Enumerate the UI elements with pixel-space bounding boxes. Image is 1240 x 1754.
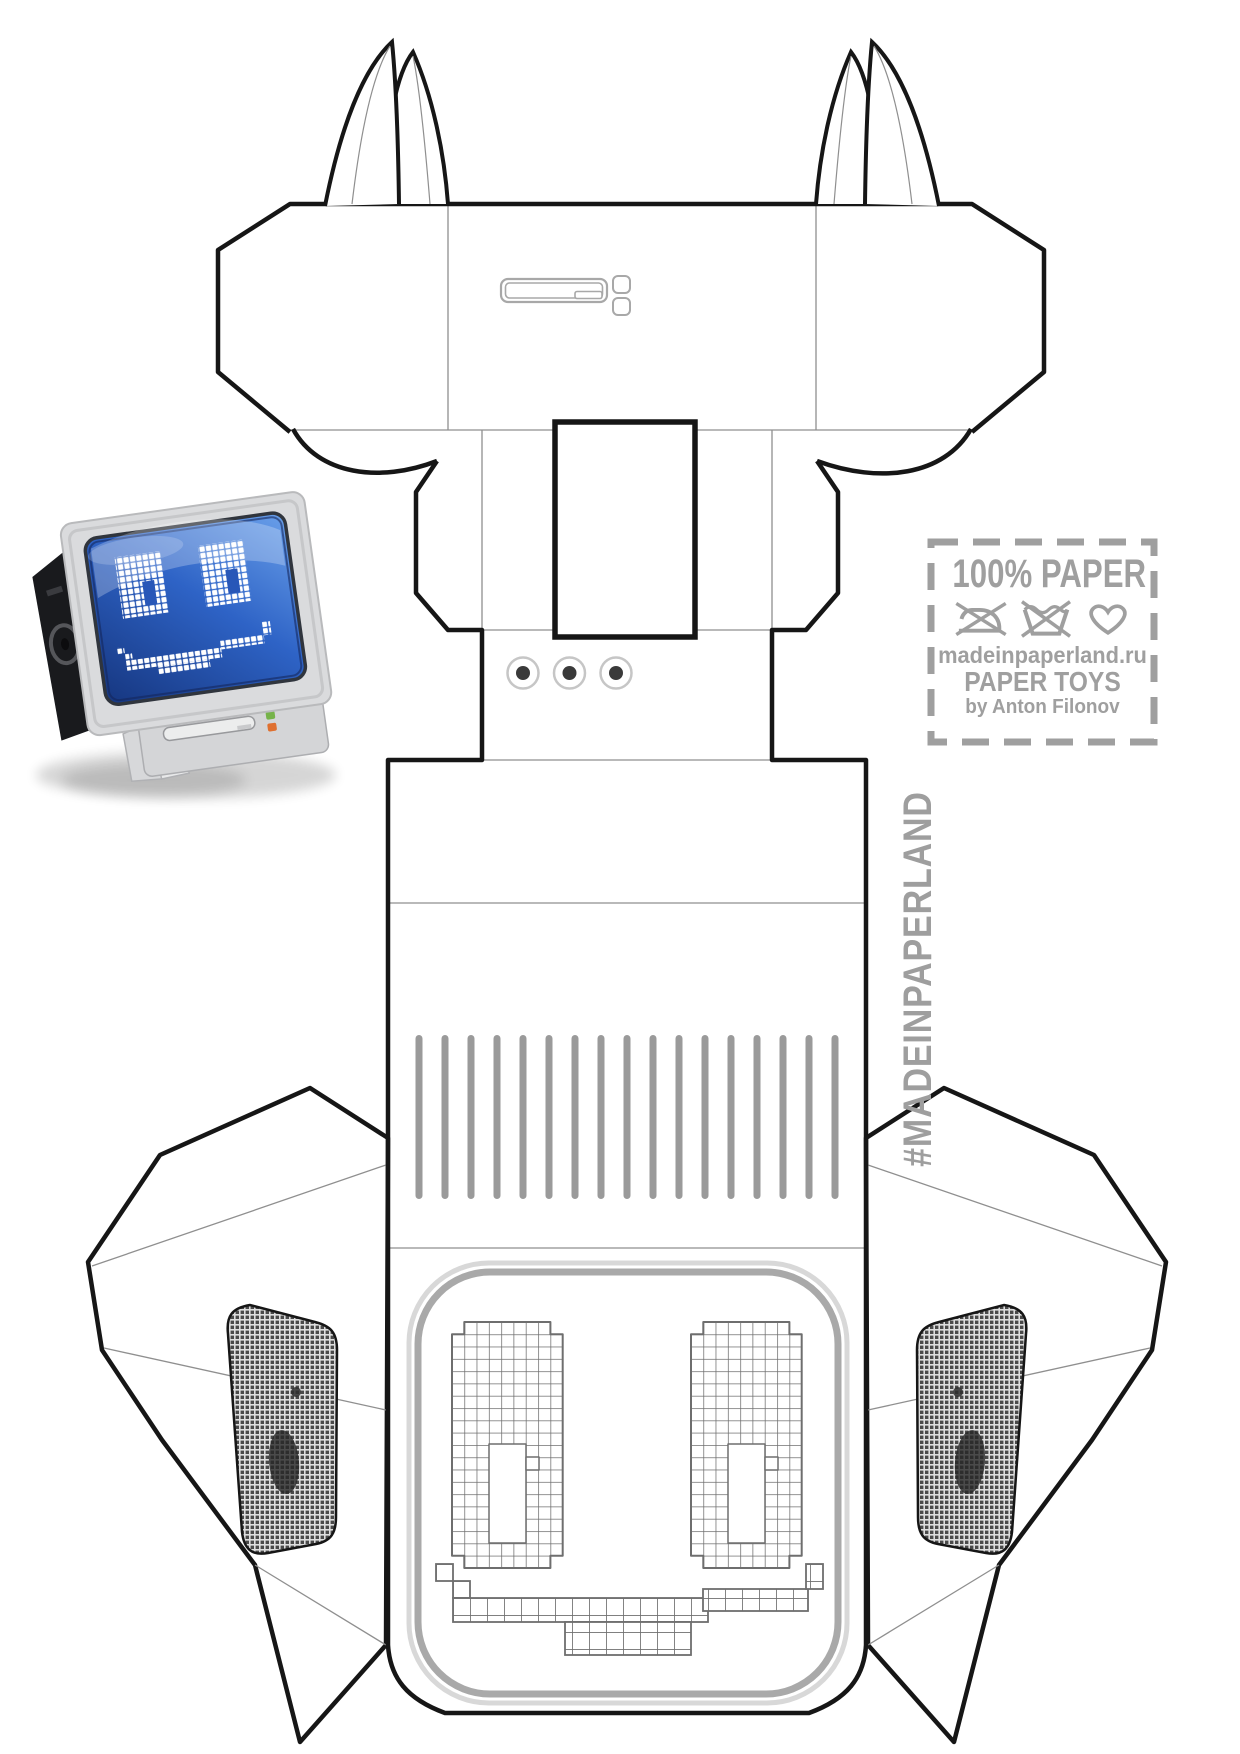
preview-orange-button (267, 723, 277, 732)
screw-dot (563, 666, 577, 680)
vent-slat (520, 1035, 527, 1199)
fold-lines (290, 206, 972, 1248)
pixel-smile (436, 1564, 823, 1655)
vent-slat (416, 1035, 423, 1199)
right-ear-flap (816, 42, 939, 206)
stamp-author: by Anton Filonov (933, 697, 1152, 718)
stamp-title: 100% PAPER (952, 553, 1132, 595)
left-speaker-grill (228, 1305, 337, 1554)
vent-slat (780, 1035, 787, 1199)
vent-slat (728, 1035, 735, 1199)
vent-slat (494, 1035, 501, 1199)
floppy-drive-detail (501, 276, 630, 315)
vent-slat (442, 1035, 449, 1199)
vent-slat (676, 1035, 683, 1199)
template-drawing (0, 0, 1240, 1754)
screw-dot (516, 666, 530, 680)
maker-stamp: 100% PAPER madeinpaperland.ru PAPER TOYS… (927, 538, 1158, 746)
no-wash-icon (1019, 599, 1073, 639)
vent-slat (702, 1035, 709, 1199)
vent-slat (832, 1035, 839, 1199)
top-piece-outline (218, 204, 1044, 432)
vent-slat (624, 1035, 631, 1199)
watermark-hashtag-text: #MADEINPAPERLAND (896, 791, 941, 1167)
stamp-series: PAPER TOYS (941, 667, 1144, 696)
vent-slat (546, 1035, 553, 1199)
assembled-toy-preview (26, 491, 340, 799)
no-iron-icon (955, 599, 1007, 639)
pixel-eye-left (452, 1322, 563, 1568)
stamp-website: madeinpaperland.ru (933, 643, 1152, 667)
left-glue-tab (293, 429, 437, 473)
right-speaker-grill (917, 1305, 1026, 1554)
screw-dots (508, 658, 632, 689)
screw-dot (609, 666, 623, 680)
hanger-rectangle (555, 422, 695, 637)
stamp-icons-row (927, 597, 1158, 641)
vent-slats (416, 1035, 839, 1199)
vent-slat (806, 1035, 813, 1199)
watermark-hashtag: #MADEINPAPERLAND (896, 760, 944, 1200)
vent-slat (650, 1035, 657, 1199)
vent-slat (598, 1035, 605, 1199)
left-ear-flap (325, 42, 448, 206)
right-glue-tab (817, 429, 971, 473)
vent-slat (468, 1035, 475, 1199)
pixel-eye-right (691, 1322, 802, 1568)
papercraft-sheet: 100% PAPER madeinpaperland.ru PAPER TOYS… (0, 0, 1240, 1754)
heart-icon (1085, 599, 1131, 639)
vent-slat (572, 1035, 579, 1199)
vent-slat (754, 1035, 761, 1199)
